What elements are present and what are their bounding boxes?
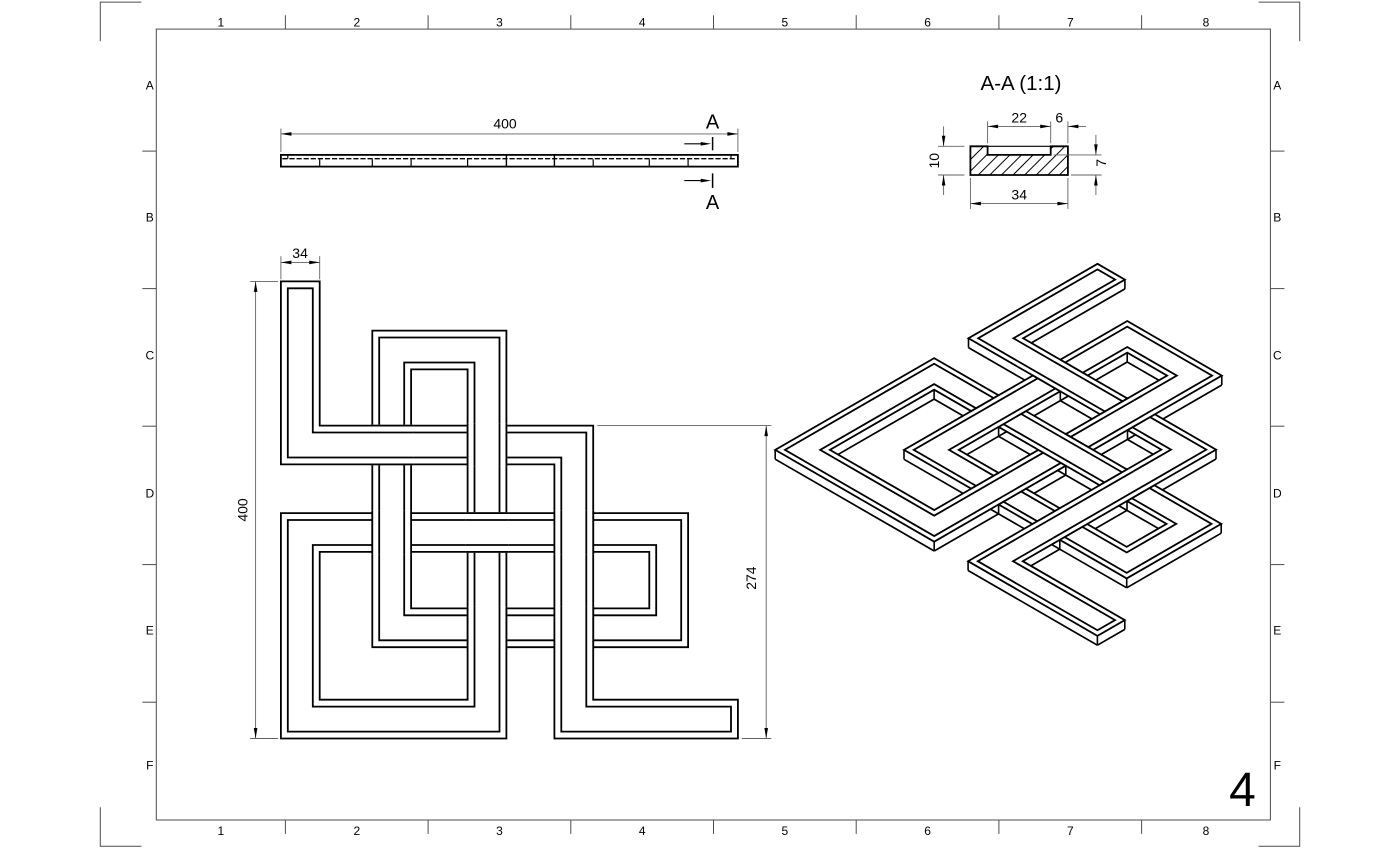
svg-text:8: 8 [1203, 16, 1210, 30]
svg-text:8: 8 [1203, 824, 1210, 838]
svg-text:A: A [706, 111, 720, 133]
svg-text:4: 4 [1229, 764, 1256, 817]
svg-text:4: 4 [639, 16, 646, 30]
svg-text:A: A [1273, 78, 1281, 92]
svg-text:F: F [1274, 758, 1281, 772]
svg-text:C: C [1273, 348, 1282, 362]
svg-text:5: 5 [782, 16, 789, 30]
svg-text:D: D [145, 486, 154, 500]
svg-text:4: 4 [639, 824, 646, 838]
svg-text:3: 3 [496, 16, 503, 30]
svg-text:E: E [1273, 623, 1281, 637]
svg-text:7: 7 [1067, 824, 1074, 838]
svg-text:7: 7 [1067, 16, 1074, 30]
svg-text:B: B [146, 210, 154, 224]
svg-text:400: 400 [235, 498, 251, 522]
svg-text:400: 400 [493, 116, 517, 132]
svg-text:A-A (1:1): A-A (1:1) [981, 72, 1062, 95]
svg-text:D: D [1273, 486, 1282, 500]
svg-text:2: 2 [353, 16, 360, 30]
svg-text:5: 5 [782, 824, 789, 838]
svg-text:6: 6 [924, 824, 931, 838]
svg-text:6: 6 [924, 16, 931, 30]
svg-text:7: 7 [1093, 159, 1109, 167]
svg-text:A: A [706, 192, 720, 214]
svg-text:A: A [146, 78, 154, 92]
svg-text:10: 10 [926, 153, 942, 169]
svg-text:E: E [146, 623, 154, 637]
svg-text:274: 274 [743, 566, 759, 590]
svg-text:34: 34 [292, 245, 308, 261]
svg-text:B: B [1273, 210, 1281, 224]
svg-text:2: 2 [353, 824, 360, 838]
svg-text:1: 1 [218, 16, 225, 30]
svg-text:C: C [145, 348, 154, 362]
svg-text:22: 22 [1011, 109, 1027, 125]
svg-text:1: 1 [218, 824, 225, 838]
svg-text:F: F [146, 758, 153, 772]
svg-text:6: 6 [1055, 109, 1063, 125]
svg-text:34: 34 [1011, 187, 1027, 203]
svg-text:3: 3 [496, 824, 503, 838]
